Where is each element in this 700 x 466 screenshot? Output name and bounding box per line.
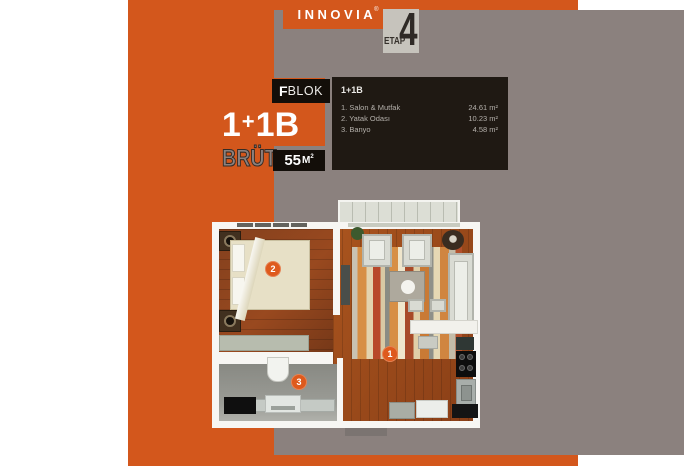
unit-type-part: 1B [256, 108, 299, 142]
burner-icon [459, 354, 465, 360]
toilet [267, 357, 289, 382]
brut-label: BRÜT [222, 146, 263, 172]
sofa-cushion [454, 261, 468, 321]
coffee-machine [456, 337, 474, 350]
sofa [448, 253, 474, 329]
pillow [232, 244, 245, 272]
floor-plan: 1 2 3 [205, 198, 490, 440]
bar-stool [418, 336, 438, 349]
panel-header: 1+1B [341, 85, 498, 95]
brand-name: INNOVIA [297, 7, 376, 22]
burner-icon [459, 365, 465, 371]
burner-icon [467, 354, 473, 360]
block-word: BLOK [288, 84, 323, 98]
registered-mark-icon: ® [374, 7, 378, 13]
brand-logo: INNOVIA ® [283, 0, 395, 29]
block-letter: F [279, 83, 288, 99]
bathroom-sink [265, 395, 301, 413]
brochure-page: INNOVIA ® ETAP 4 1 + 1B F BLOK BRÜT 55 M… [0, 0, 700, 466]
dining-table [416, 400, 448, 418]
balcony [338, 200, 460, 224]
room-area: 4.58 m² [473, 124, 498, 135]
sink-basin [461, 385, 472, 401]
brut-unit: M [301, 155, 310, 166]
bathroom-right-wall [337, 358, 343, 421]
bedroom-window [237, 223, 307, 227]
stool [430, 299, 446, 312]
kitchen-sink [456, 379, 476, 407]
table-decor [401, 280, 415, 294]
etap-number: 4 [400, 9, 418, 53]
stove [456, 351, 476, 377]
unit-type-part: 1 [222, 108, 241, 142]
room-label: 1. Salon & Mutfak [341, 102, 400, 113]
armchair-cushion [369, 240, 385, 260]
tv-unit [341, 265, 350, 305]
room-row: 2. Yatak Odası 10.23 m² [341, 113, 498, 124]
armchair [402, 234, 432, 267]
block-label: F BLOK [272, 79, 330, 103]
coffee-table [389, 271, 425, 302]
burner-icon [467, 365, 473, 371]
room-row: 1. Salon & Mutfak 24.61 m² [341, 102, 498, 113]
room-row: 3. Banyo 4.58 m² [341, 124, 498, 135]
room-label: 2. Yatak Odası [341, 113, 390, 124]
etap-badge: ETAP 4 [383, 9, 419, 53]
room-badge-1: 1 [382, 346, 398, 362]
plant-pot-icon [442, 230, 464, 250]
bedroom-living-wall [333, 222, 340, 315]
room-area: 24.61 m² [468, 102, 498, 113]
brut-superscript: 2 [310, 154, 313, 160]
armchair [362, 234, 392, 267]
rooms-panel: 1+1B 1. Salon & Mutfak 24.61 m² 2. Yatak… [332, 77, 508, 170]
plus-sign: + [241, 105, 256, 139]
entrance-step [345, 428, 387, 436]
brut-value: 55 [284, 152, 301, 169]
wardrobe [219, 335, 309, 351]
sink-faucet-icon [271, 406, 295, 410]
cabinet [389, 402, 415, 419]
room-area: 10.23 m² [468, 113, 498, 124]
fridge [452, 404, 478, 418]
room-badge-2: 2 [265, 261, 281, 277]
kitchen-counter [410, 320, 478, 334]
room-label: 3. Banyo [341, 124, 371, 135]
balcony-door [348, 223, 460, 227]
brut-value-box: 55 M 2 [273, 150, 325, 171]
washing-machine [224, 397, 256, 414]
armchair-cushion [409, 240, 425, 260]
stool [408, 299, 424, 312]
room-badge-3: 3 [291, 374, 307, 390]
